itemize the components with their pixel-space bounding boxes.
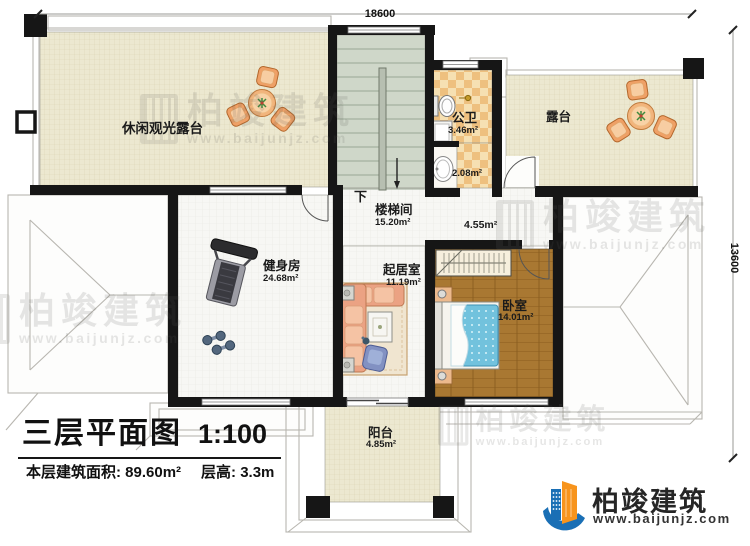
room-area-corridor: 4.55m² (464, 220, 497, 231)
room-label-leisure-terrace: 休闲观光露台 (122, 122, 203, 136)
stair-down-label: 下 (354, 190, 367, 203)
brand-url: www.baijunjz.com (593, 511, 731, 526)
room-area-bath-vanity: 2.08m² (452, 169, 482, 179)
title-block: 三层平面图1:100 (18, 408, 281, 459)
room-label-balcony: 阳台 (368, 427, 393, 440)
room-area-gym: 24.68m² (263, 274, 298, 284)
room-label-public-bath: 公卫 (452, 112, 477, 125)
brand-logo-icon (540, 477, 590, 531)
room-label-living: 起居室 (383, 264, 421, 277)
room-label-gym: 健身房 (263, 260, 301, 273)
bed (433, 287, 499, 384)
room-area-living: 11.19m² (386, 278, 421, 288)
plan-scale: 1:100 (198, 419, 267, 449)
room-area-bedroom: 14.01m² (498, 313, 533, 323)
dimension-right: 13600 (728, 236, 740, 280)
floor-plan-page: 柏竣建筑 www.baijunjz.com 柏竣建筑 www.baijunjz.… (0, 0, 750, 546)
floor-area-text: 本层建筑面积: 89.60m² (26, 464, 181, 481)
room-label-stairwell: 楼梯间 (375, 204, 413, 217)
room-label-bedroom: 卧室 (502, 300, 527, 313)
room-area-balcony: 4.85m² (366, 440, 396, 450)
wardrobe (436, 250, 511, 276)
dimension-top: 18600 (355, 8, 405, 20)
plan-title: 三层平面图 (22, 417, 182, 450)
room-label-terrace: 露台 (546, 111, 571, 124)
room-area-stairwell: 15.20m² (375, 218, 410, 228)
floor-height-text: 层高: 3.3m (201, 464, 274, 481)
room-area-public-bath: 3.46m² (448, 126, 478, 136)
sofa-set (339, 283, 407, 375)
plan-subtitle: 本层建筑面积: 89.60m²层高: 3.3m (26, 461, 294, 482)
